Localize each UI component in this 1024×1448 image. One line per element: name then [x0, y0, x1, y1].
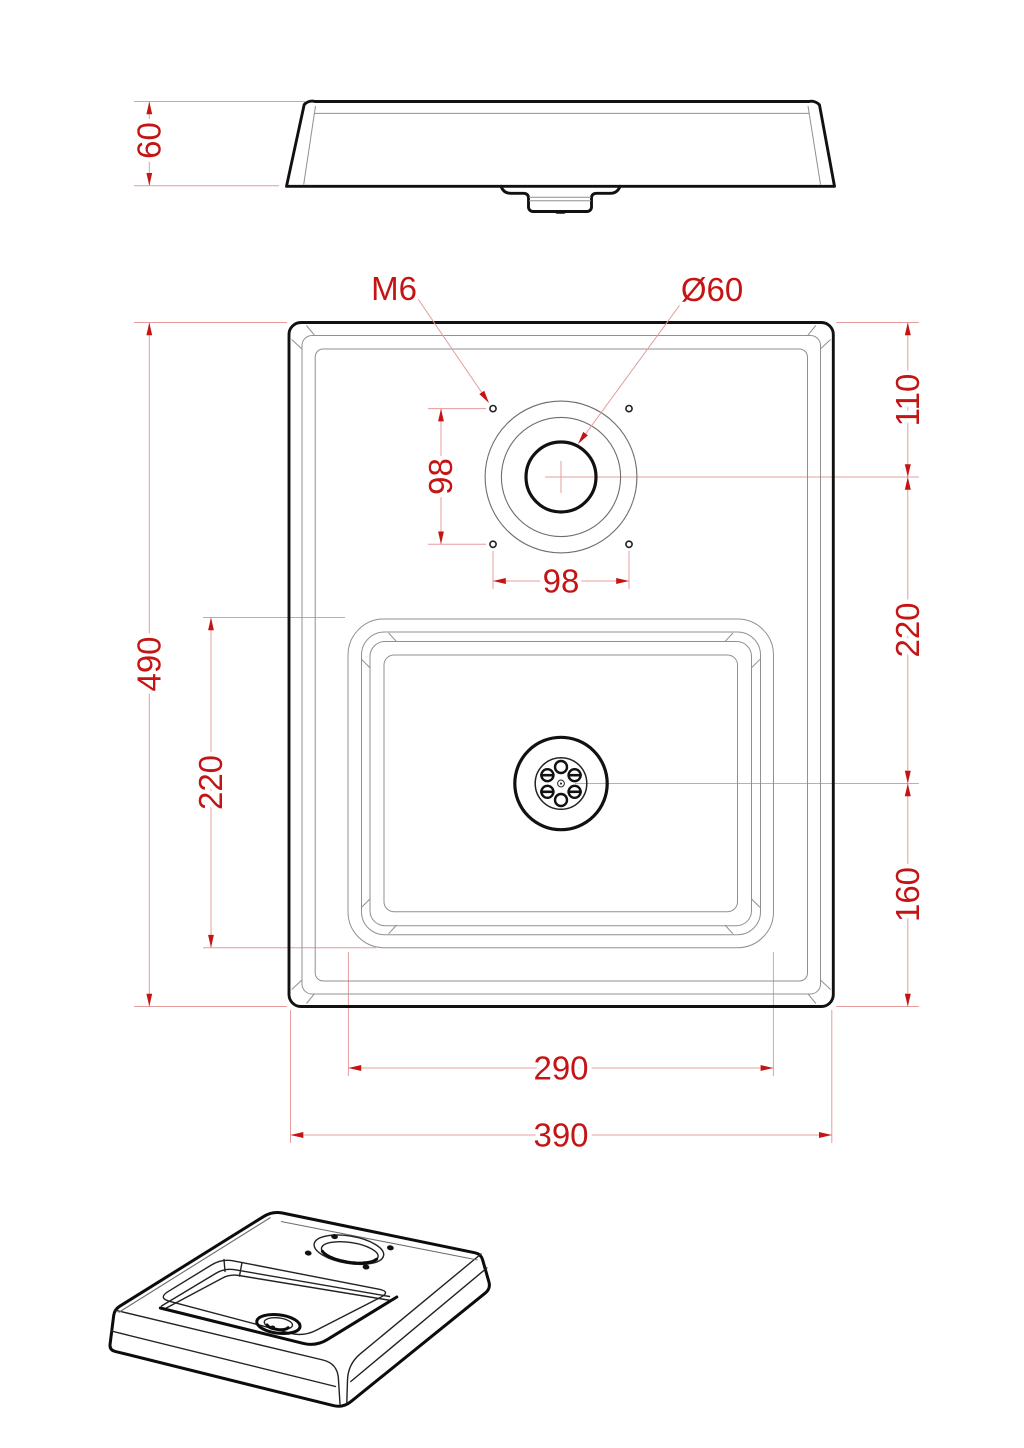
svg-text:98: 98 — [543, 563, 580, 600]
svg-text:390: 390 — [533, 1117, 588, 1154]
svg-text:98: 98 — [422, 458, 459, 495]
svg-text:220: 220 — [889, 602, 926, 657]
svg-text:M6: M6 — [371, 270, 417, 307]
svg-text:490: 490 — [131, 636, 168, 691]
svg-text:160: 160 — [889, 867, 926, 922]
svg-text:60: 60 — [131, 122, 168, 159]
svg-text:Ø60: Ø60 — [681, 271, 743, 308]
svg-text:110: 110 — [889, 374, 926, 427]
svg-text:290: 290 — [533, 1050, 588, 1087]
svg-text:220: 220 — [192, 755, 229, 810]
